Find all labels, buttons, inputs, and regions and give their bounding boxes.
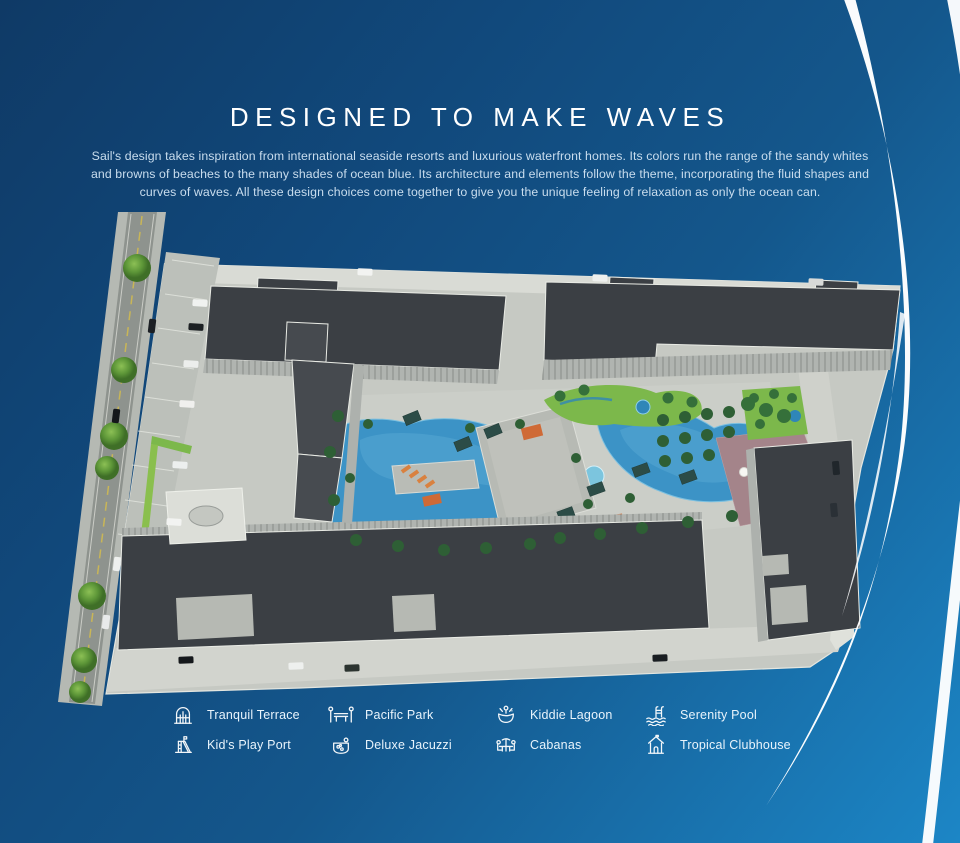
- page-description: Sail's design takes inspiration from int…: [84, 147, 876, 202]
- legend-item-cabanas: Cabanas: [491, 735, 641, 756]
- lagoon-pond: [636, 400, 650, 414]
- legend-label: Cabanas: [530, 738, 581, 752]
- deluxe-jacuzzi-icon: [326, 734, 356, 756]
- legend-label: Kid's Play Port: [207, 738, 291, 752]
- kids-play-port-icon: [168, 734, 198, 756]
- legend-label: Pacific Park: [365, 708, 433, 722]
- tropical-clubhouse-icon: [641, 734, 671, 756]
- legend-item-kiddie-lagoon: Kiddie Lagoon: [491, 704, 641, 726]
- legend-label: Tropical Clubhouse: [680, 738, 791, 752]
- driveway-oval: [189, 506, 223, 526]
- in-pool-walk: [392, 460, 479, 494]
- kiddie-lagoon-icon: [491, 704, 521, 726]
- legend-label: Serenity Pool: [680, 708, 757, 722]
- serenity-pool-icon: [641, 704, 671, 726]
- page-title: DESIGNED TO MAKE WAVES: [0, 102, 960, 133]
- legend-label: Tranquil Terrace: [207, 708, 300, 722]
- legend-label: Deluxe Jacuzzi: [365, 738, 452, 752]
- tranquil-terrace-icon: [168, 704, 198, 726]
- amenity-legend: Tranquil Terrace Pacific Park: [168, 700, 830, 760]
- legend-item-tropical-clubhouse: Tropical Clubhouse: [641, 734, 830, 756]
- legend-item-tranquil-terrace: Tranquil Terrace: [168, 704, 326, 726]
- legend-item-deluxe-jacuzzi: Deluxe Jacuzzi: [326, 734, 491, 756]
- legend-label: Kiddie Lagoon: [530, 708, 613, 722]
- cabanas-icon: [491, 735, 521, 756]
- marketing-page: DESIGNED TO MAKE WAVES Sail's design tak…: [0, 0, 960, 843]
- small-pavilion-roof: [285, 322, 328, 362]
- legend-item-kids-play-port: Kid's Play Port: [168, 734, 326, 756]
- legend-item-pacific-park: Pacific Park: [326, 705, 491, 726]
- pacific-park-icon: [326, 705, 356, 726]
- legend-item-serenity-pool: Serenity Pool: [641, 704, 830, 726]
